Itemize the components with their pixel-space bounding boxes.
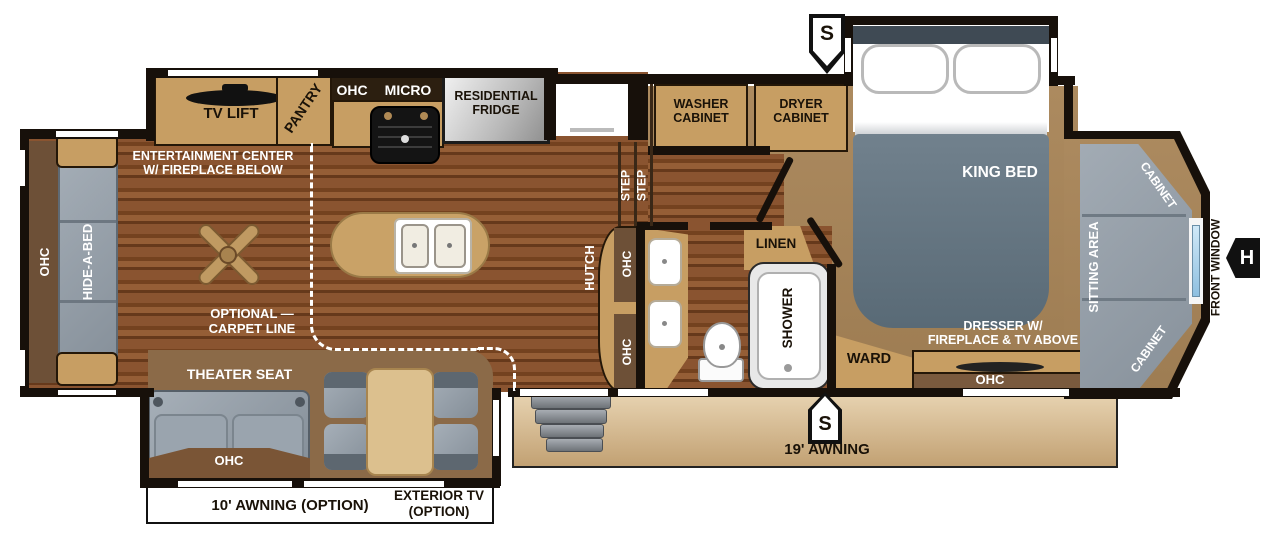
dinette-chair-back (432, 454, 478, 470)
bed-slide-wall (844, 16, 1058, 25)
optional-carpet-line (310, 143, 480, 351)
wall (146, 68, 155, 141)
entry-door-sill (570, 128, 614, 132)
window (56, 131, 118, 137)
window (20, 350, 25, 386)
fridge-label: RESIDENTIAL FRIDGE (446, 88, 546, 118)
sitting-area-label: SITTING AREA (1087, 212, 1101, 322)
front-window-label: FRONT WINDOW (1210, 213, 1223, 323)
hutch-ohc-label: OHC (622, 327, 634, 377)
window (178, 481, 292, 487)
optional-carpet-label: OPTIONAL — CARPET LINE (196, 306, 308, 338)
entry-steps (546, 438, 603, 452)
entry-steps (540, 424, 604, 438)
bed-slide-window (1051, 38, 1057, 72)
bath-wall (710, 222, 772, 230)
rv-floor-plan: ENTERTAINMENT CENTER W/ FIREPLACE BELOW … (0, 0, 1280, 560)
king-bed-label: KING BED (938, 164, 1062, 182)
dinette-chair-back (324, 372, 370, 388)
h-marker-label: H (1234, 246, 1260, 270)
sofa-ohc-label: OHC (38, 237, 52, 287)
hide-a-bed-label: HIDE-A-BED (81, 212, 95, 312)
dryer-cabinet-label: DRYER CABINET (756, 96, 846, 126)
stove-grate-line (378, 126, 432, 128)
dresser-tv-icon (956, 362, 1044, 372)
tv-icon (222, 84, 248, 92)
entertainment-center-label: ENTERTAINMENT CENTER W/ FIREPLACE BELOW (118, 148, 308, 178)
window (20, 150, 25, 186)
bath-wall (636, 222, 688, 230)
window (58, 390, 116, 395)
sofa-end-table (56, 134, 118, 168)
window (493, 400, 499, 456)
wall (648, 74, 852, 84)
tv-icon (186, 90, 282, 106)
dresser-ohc-label: OHC (952, 372, 1028, 389)
window (168, 70, 318, 76)
linen-label: LINEN (746, 236, 806, 252)
window (618, 389, 708, 396)
wall (1064, 76, 1073, 138)
sink-drain (662, 321, 667, 326)
washer-cabinet-label: WASHER CABINET (656, 96, 746, 126)
micro-label: MICRO (378, 82, 438, 98)
window (963, 389, 1069, 396)
optional-carpet-line (478, 347, 516, 391)
bed-slide-window (845, 38, 851, 72)
ward-label: WARD (836, 350, 902, 368)
s-marker-top-label: S (813, 22, 841, 46)
toilet-drain (719, 344, 725, 350)
wall (628, 82, 648, 140)
bath-wall (827, 264, 836, 394)
tv-lift-label: TV LIFT (176, 106, 286, 122)
entry-steps (535, 409, 607, 424)
dinette-table (366, 368, 434, 476)
window (304, 481, 444, 487)
step-label: STEP (620, 161, 633, 211)
kitchen-ohc-label: OHC (330, 82, 374, 98)
bath-wall (636, 222, 645, 394)
awning-10-label: 10' AWNING (OPTION) (160, 497, 420, 515)
entry-door-opening (520, 389, 608, 396)
theater-seat-label: THEATER SEAT (162, 366, 317, 382)
theater-slide-wall (140, 392, 149, 486)
ceiling-fan-hub (219, 246, 237, 264)
s-marker-bottom-label: S (812, 412, 838, 436)
front-window-glass (1192, 225, 1200, 297)
wall (648, 146, 770, 155)
sofa-end-table (56, 352, 118, 386)
hutch-label: HUTCH (583, 238, 597, 298)
step-label: STEP (636, 161, 649, 211)
dinette-chair-back (432, 372, 478, 388)
sink-drain (662, 259, 667, 264)
shower-label: SHOWER (781, 278, 795, 358)
theater-ohc-label: OHC (150, 454, 308, 469)
pillow (861, 44, 949, 94)
wall (508, 388, 1180, 397)
step-edge-line (650, 84, 653, 226)
dinette-chair-back (324, 454, 370, 470)
dresser-label: DRESSER W/ FIREPLACE & TV ABOVE (918, 318, 1088, 348)
pillow (953, 44, 1041, 94)
shower-drain (784, 364, 792, 372)
bed-headboard (853, 26, 1049, 46)
stove-knob (420, 112, 428, 120)
armrest-dot (295, 397, 305, 407)
hutch-ohc-label: OHC (622, 239, 634, 289)
exterior-tv-label: EXTERIOR TV (OPTION) (386, 488, 492, 520)
armrest-dot (153, 397, 163, 407)
stove-burner-dot (401, 135, 409, 143)
stove-knob (384, 112, 392, 120)
